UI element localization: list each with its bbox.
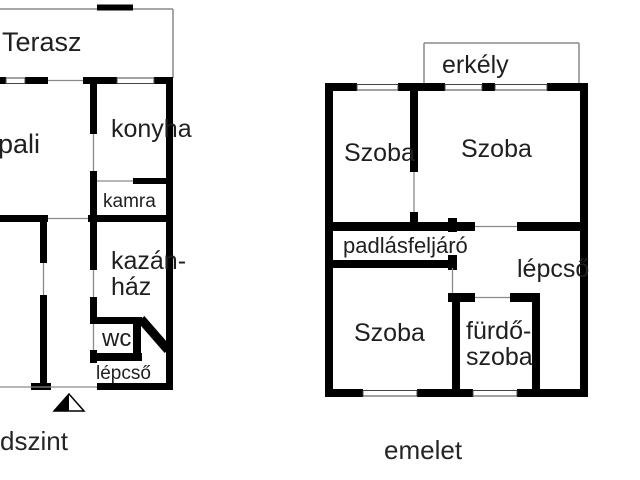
floor-plan-drawing (0, 0, 640, 480)
room-label-kazanhaz-line2: ház (111, 274, 186, 300)
room-label-szoba-top-left: Szoba (344, 140, 415, 166)
diagonal-wall (141, 319, 168, 350)
room-label-szoba-bottom: Szoba (354, 320, 425, 346)
room-label-furdoszoba-line1: fürdő- (466, 318, 533, 344)
room-label-kamra: kamra (103, 192, 156, 212)
room-label-kazanhaz-line1: kazán- (111, 248, 186, 274)
floor-caption-upper: emelet (384, 437, 462, 464)
room-label-konyha: konyha (111, 116, 192, 142)
room-label-erkely: erkély (442, 52, 509, 78)
room-label-padlasfeljaro: padlásfeljáró (343, 234, 468, 257)
room-label-lepcso-ground: lépcső (96, 364, 151, 384)
north-arrow-icon (54, 394, 84, 411)
room-label-terasz: Terasz (2, 28, 82, 56)
room-label-kazanhaz: kazán- ház (111, 248, 186, 301)
terrace-wall-segment (97, 5, 133, 11)
room-label-szoba-top-right: Szoba (461, 136, 532, 162)
room-label-furdoszoba: fürdő- szoba (466, 318, 533, 371)
floor-caption-ground: dszint (0, 428, 68, 455)
room-label-furdoszoba-line2: szoba (466, 344, 533, 370)
room-label-lepcso-upper: lépcső (517, 256, 589, 282)
floor-plan-image: Terasz pali konyha kamra kazán- ház wc l… (0, 0, 640, 480)
room-label-wc: wc (102, 326, 131, 351)
room-label-nappali: pali (0, 130, 40, 158)
